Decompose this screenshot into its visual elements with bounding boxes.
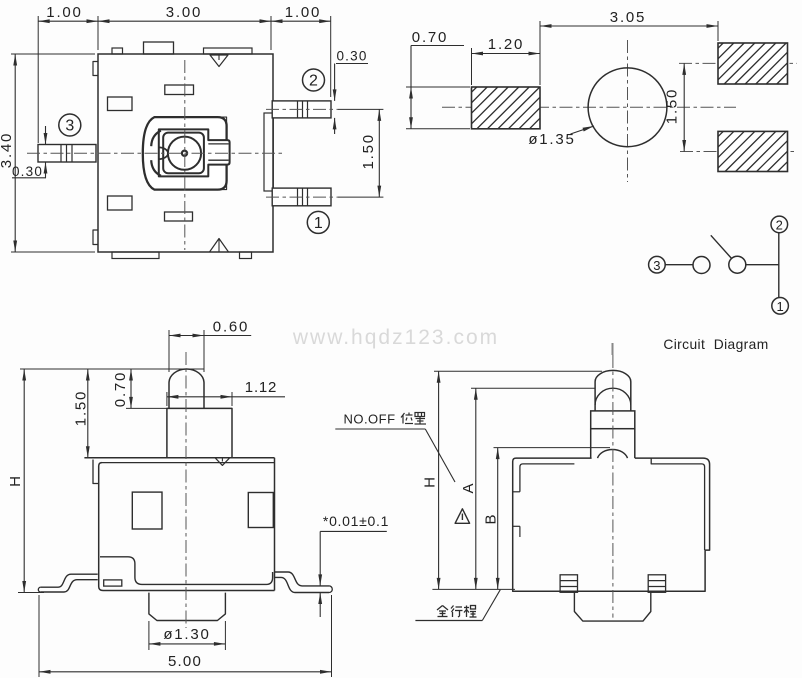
svg-text:1.00: 1.00 bbox=[46, 4, 82, 21]
svg-text:5.00: 5.00 bbox=[168, 653, 202, 670]
svg-text:ø1.30: ø1.30 bbox=[163, 626, 210, 643]
svg-text:0.60: 0.60 bbox=[213, 319, 249, 336]
svg-text:ø1.35: ø1.35 bbox=[528, 131, 575, 148]
svg-text:2: 2 bbox=[776, 218, 783, 233]
svg-text:0.70: 0.70 bbox=[412, 29, 448, 46]
svg-text:1.00: 1.00 bbox=[285, 4, 321, 21]
svg-text:0.30: 0.30 bbox=[12, 164, 43, 179]
svg-text:1.20: 1.20 bbox=[488, 36, 524, 53]
svg-text:*0.01±0.1: *0.01±0.1 bbox=[323, 513, 389, 529]
svg-text:B: B bbox=[483, 514, 500, 524]
svg-text:NO.OFF: NO.OFF bbox=[343, 412, 395, 427]
svg-text:0.30: 0.30 bbox=[336, 49, 367, 64]
svg-text:H: H bbox=[7, 476, 24, 487]
svg-text:H: H bbox=[422, 477, 439, 488]
svg-text:1.50: 1.50 bbox=[73, 390, 90, 426]
svg-text:3.00: 3.00 bbox=[166, 4, 202, 21]
svg-text:1: 1 bbox=[314, 215, 323, 232]
svg-text:3: 3 bbox=[65, 118, 74, 135]
svg-text:1: 1 bbox=[776, 299, 783, 314]
svg-text:3.40: 3.40 bbox=[0, 132, 15, 168]
svg-text:Circuit Diagram: Circuit Diagram bbox=[663, 337, 768, 352]
svg-text:1.12: 1.12 bbox=[245, 379, 277, 396]
svg-text:3: 3 bbox=[653, 258, 660, 273]
svg-text:2: 2 bbox=[309, 73, 318, 90]
svg-text:0.70: 0.70 bbox=[112, 371, 129, 407]
svg-text:A: A bbox=[460, 483, 477, 493]
svg-text:www.hqdz123.com: www.hqdz123.com bbox=[292, 326, 499, 349]
svg-text:1.50: 1.50 bbox=[664, 88, 681, 124]
svg-text:1.50: 1.50 bbox=[360, 133, 377, 169]
svg-text:3.05: 3.05 bbox=[610, 9, 646, 26]
